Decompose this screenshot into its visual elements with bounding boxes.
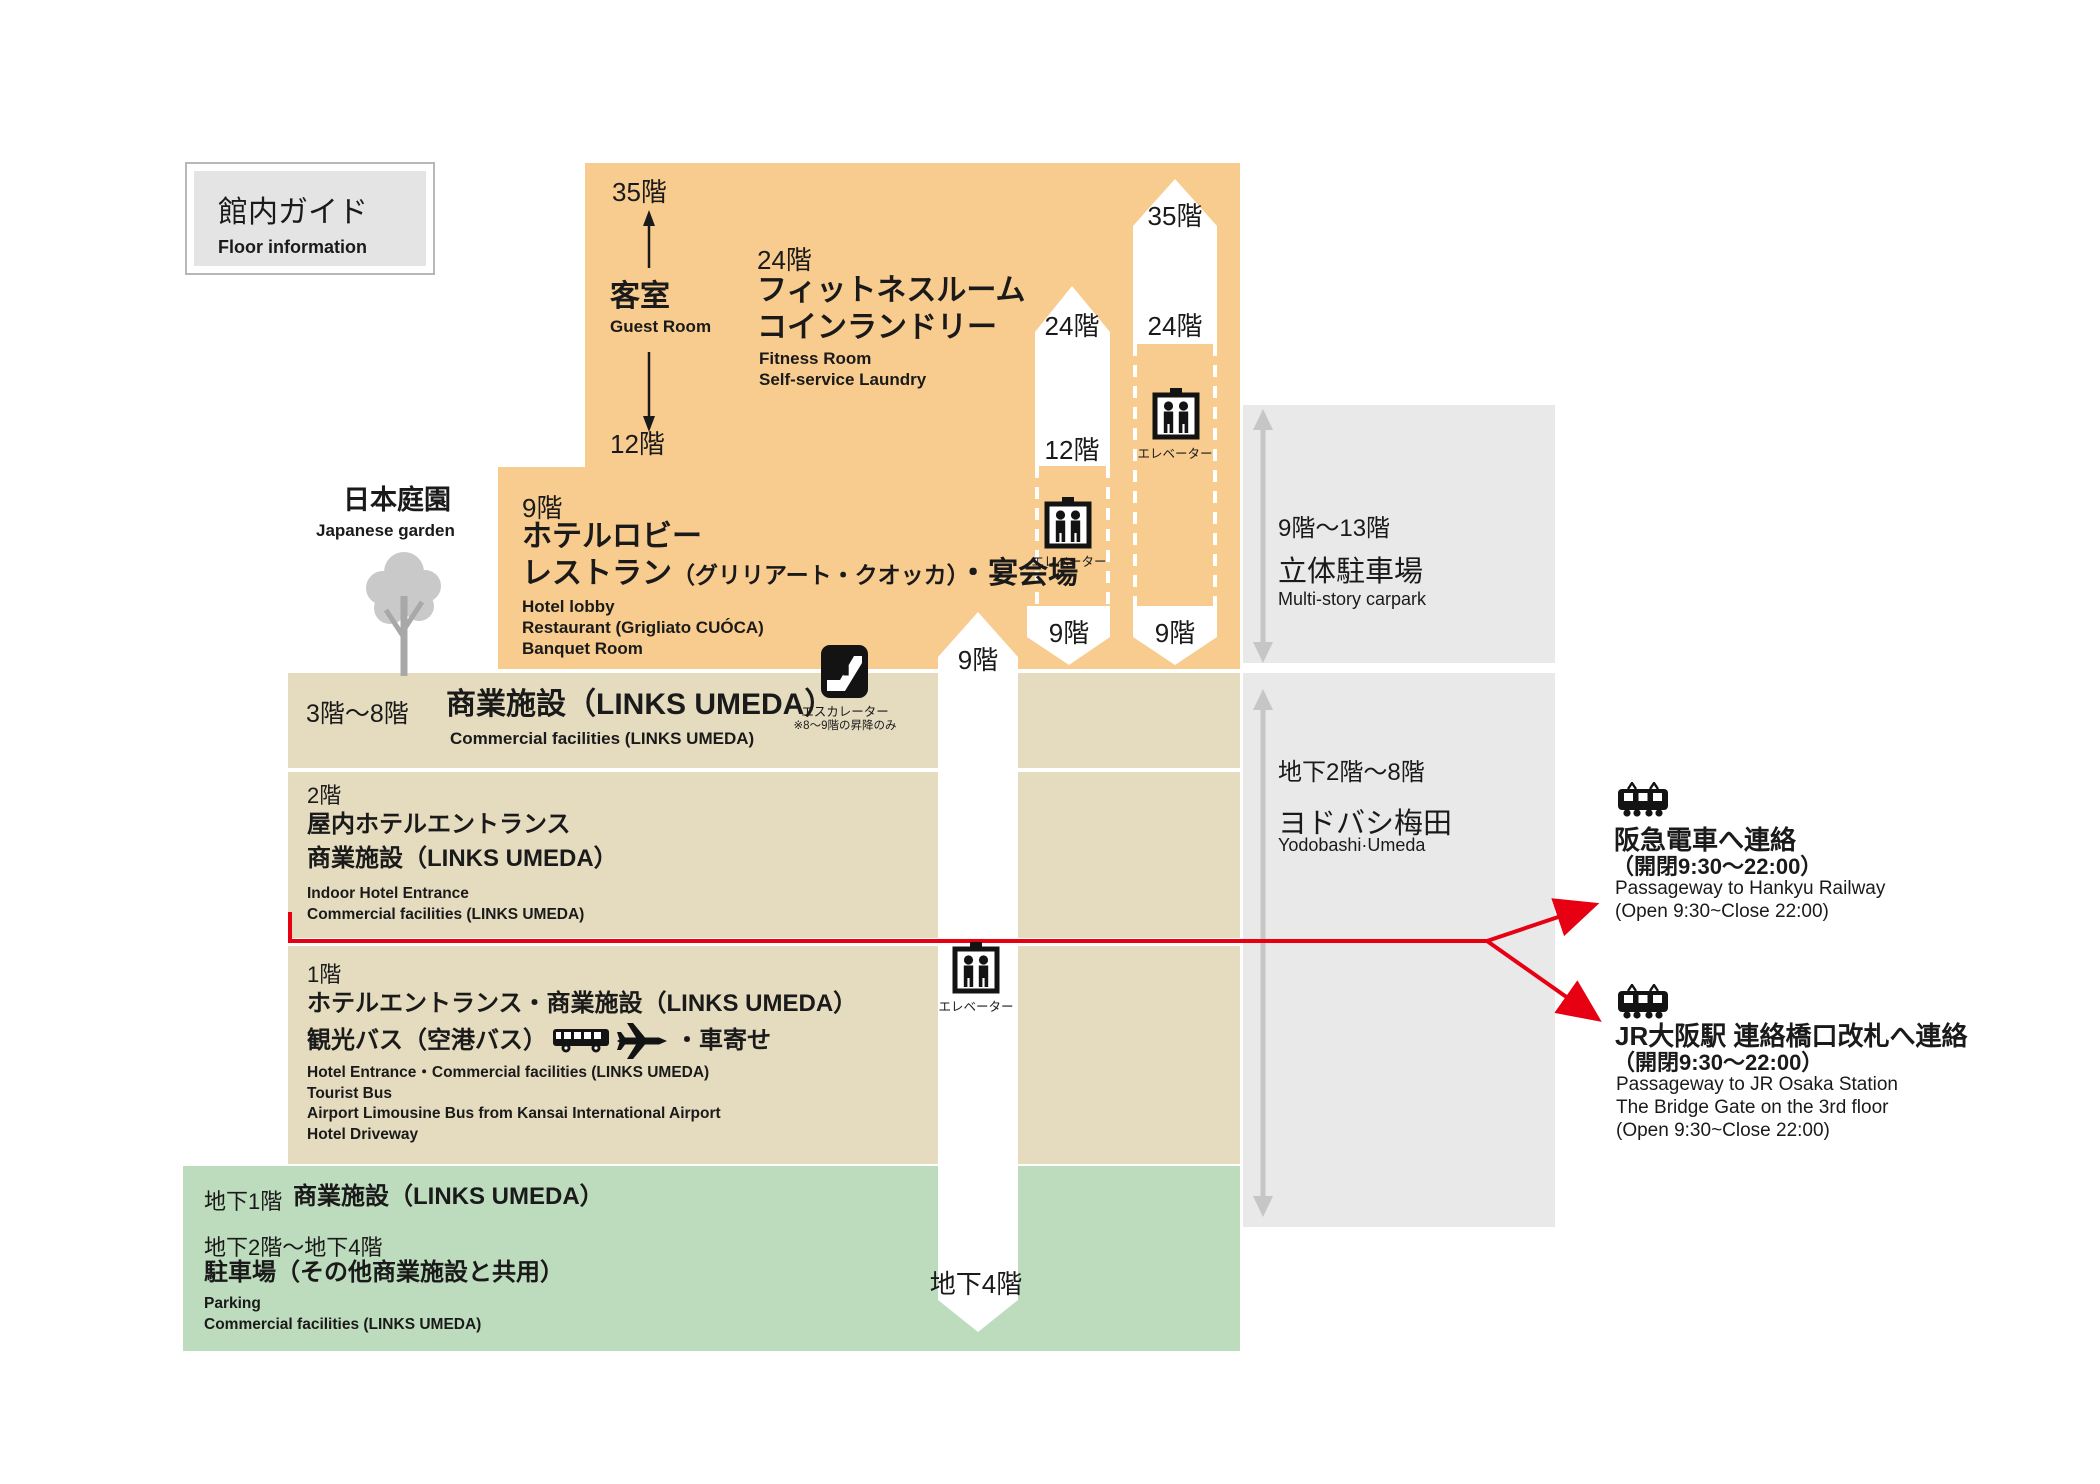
basement2-label-jp: 駐車場（その他商業施設と共用）: [204, 1256, 564, 1290]
elevator-icon-left-shaft: [1044, 497, 1092, 549]
gray-arrowhead: [1253, 409, 1273, 430]
page-title-en: Floor information: [218, 237, 426, 258]
floor1-en-line4: Hotel Driveway: [307, 1125, 721, 1146]
right-shaft-mid-floor: 24階: [1148, 306, 1203, 343]
floor-information-diagram: 館内ガイド Floor information 35階 客室 Guest Roo…: [0, 0, 2100, 1484]
train-icon-jr: [1617, 984, 1669, 1020]
hankyu-en-line2: (Open 9:30~Close 22:00): [1615, 900, 1885, 923]
plane-icon: [615, 1019, 669, 1063]
basement-en-line2: Commercial facilities (LINKS UMEDA): [204, 1315, 481, 1336]
escalator-icon: [821, 645, 868, 698]
floor2-en-line1: Indoor Hotel Entrance: [307, 884, 584, 905]
gray-arrowhead: [1253, 642, 1273, 663]
title-box-inner: 館内ガイド Floor information: [194, 171, 426, 266]
elevator-icon-right-shaft: [1152, 388, 1200, 440]
right-shaft-top-floor: 35階: [1148, 196, 1203, 233]
jr-en-line1: Passageway to JR Osaka Station: [1616, 1073, 1898, 1096]
tree-icon: [363, 548, 445, 676]
left-shaft-exit-floor: 9階: [1049, 613, 1089, 650]
guest-room-label-jp: 客室: [610, 278, 670, 315]
japanese-garden-label: 日本庭園 Japanese garden: [316, 478, 451, 541]
floor9-jp-restaurant: レストラン: [522, 557, 672, 590]
floors3to8-range: 3階〜8階: [306, 694, 409, 730]
guest-room-bottom-floor: 12階: [610, 424, 665, 461]
floor2-jp-line1: 屋内ホテルエントランス: [307, 808, 618, 842]
train-icon-hankyu: [1617, 782, 1669, 818]
floor9-en-line2: Restaurant (Grigliato CUÓCA): [522, 617, 764, 638]
floor1-en-line3: Airport Limousine Bus from Kansai Intern…: [307, 1104, 721, 1125]
floor1-driveway-text: ・車寄せ: [675, 1024, 771, 1058]
left-shaft-elevator-label: エレベーター: [1031, 551, 1106, 570]
right-shaft-exit-floor: 9階: [1155, 613, 1195, 650]
jr-en-line2: The Bridge Gate on the 3rd floor: [1616, 1096, 1898, 1119]
right-shaft-elevator-label: エレベーター: [1137, 443, 1212, 462]
hankyu-label-en: Passageway to Hankyu Railway (Open 9:30~…: [1615, 877, 1885, 923]
floor9-jp-line2: レストラン（グリリアート・クオッカ）・宴会場: [522, 555, 1078, 594]
up-arrowhead: [643, 210, 655, 226]
floor2-jp-line2: 商業施設（LINKS UMEDA）: [307, 842, 618, 876]
floor2-label-jp: 屋内ホテルエントランス 商業施設（LINKS UMEDA）: [307, 808, 618, 876]
floor1-jp-line1: ホテルエントランス・商業施設（LINKS UMEDA）: [307, 987, 857, 1021]
page-title-jp: 館内ガイド: [218, 187, 426, 231]
hankyu-en-line1: Passageway to Hankyu Railway: [1615, 877, 1885, 900]
carpark-range: 9階〜13階: [1278, 508, 1390, 543]
fitness-en-line2: Self-service Laundry: [759, 369, 926, 390]
center-shaft-bottom-floor: 地下4階: [930, 1264, 1022, 1301]
basement1-label-jp: 商業施設（LINKS UMEDA）: [293, 1180, 604, 1214]
carpark-label-jp: 立体駐車場: [1278, 548, 1423, 590]
basement-label-en: Parking Commercial facilities (LINKS UME…: [204, 1294, 481, 1335]
carpark-label-en: Multi-story carpark: [1278, 589, 1426, 610]
garden-jp: 日本庭園: [316, 478, 451, 517]
fitness-jp-line2: コインランドリー: [757, 309, 1026, 346]
floor9-jp-restaurant-name: （グリリアート・クオッカ）: [672, 562, 958, 588]
center-shaft-top-floor: 9階: [958, 640, 998, 677]
title-box: 館内ガイド Floor information: [185, 162, 435, 275]
basement-en-line1: Parking: [204, 1294, 481, 1315]
fitness-en-line1: Fitness Room: [759, 348, 926, 369]
jr-label-en: Passageway to JR Osaka Station The Bridg…: [1616, 1073, 1898, 1142]
fitness-label-en: Fitness Room Self-service Laundry: [759, 348, 926, 390]
floor1-en-line1: Hotel Entrance・Commercial facilities (LI…: [307, 1063, 721, 1084]
escalator-note: ※8〜9階の昇降のみ: [794, 717, 897, 733]
center-shaft-elevator-label: エレベーター: [938, 996, 1013, 1015]
floor1-label-en: Hotel Entrance・Commercial facilities (LI…: [307, 1063, 721, 1145]
floor1-number: 1階: [307, 957, 341, 989]
yodobashi-label-en: Yodobashi·Umeda: [1278, 835, 1425, 856]
bus-icon: [553, 1028, 609, 1054]
left-shaft-top-floor: 24階: [1045, 306, 1100, 343]
elevator-icon-center-shaft: [952, 942, 1000, 994]
floor9-en-line3: Banquet Room: [522, 638, 764, 659]
floors3to8-label-en: Commercial facilities (LINKS UMEDA): [450, 728, 754, 749]
floor1-bus-text: 観光バス（空港バス）: [307, 1024, 547, 1058]
floor9-jp-line1: ホテルロビー: [522, 518, 1078, 555]
guest-room-label-en: Guest Room: [610, 316, 711, 337]
yodobashi-range: 地下2階〜8階: [1278, 752, 1425, 787]
gray-arrowhead: [1253, 689, 1273, 710]
floor2-en-line2: Commercial facilities (LINKS UMEDA): [307, 905, 584, 926]
floor9-label-en: Hotel lobby Restaurant (Grigliato CUÓCA)…: [522, 596, 764, 659]
basement1-range: 地下1階: [204, 1184, 282, 1216]
left-shaft-bottom-floor: 12階: [1045, 430, 1100, 467]
floor1-en-line2: Tourist Bus: [307, 1084, 721, 1105]
floor2-number: 2階: [307, 778, 341, 810]
floors3to8-label-jp: 商業施設（LINKS UMEDA）: [446, 686, 834, 723]
floor1-jp-line2: 観光バス（空港バス） ・車寄せ: [307, 1020, 771, 1062]
gray-arrowhead: [1253, 1196, 1273, 1217]
floor2-label-en: Indoor Hotel Entrance Commercial facilit…: [307, 884, 584, 925]
floor9-en-line1: Hotel lobby: [522, 596, 764, 617]
fitness-label-jp: フィットネスルーム コインランドリー: [757, 272, 1026, 346]
floor9-label-jp: ホテルロビー レストラン（グリリアート・クオッカ）・宴会場: [522, 518, 1078, 594]
guest-room-top-floor: 35階: [612, 172, 667, 209]
garden-en: Japanese garden: [316, 521, 451, 541]
fitness-jp-line1: フィットネスルーム: [757, 272, 1026, 309]
jr-en-line3: (Open 9:30~Close 22:00): [1616, 1119, 1898, 1142]
